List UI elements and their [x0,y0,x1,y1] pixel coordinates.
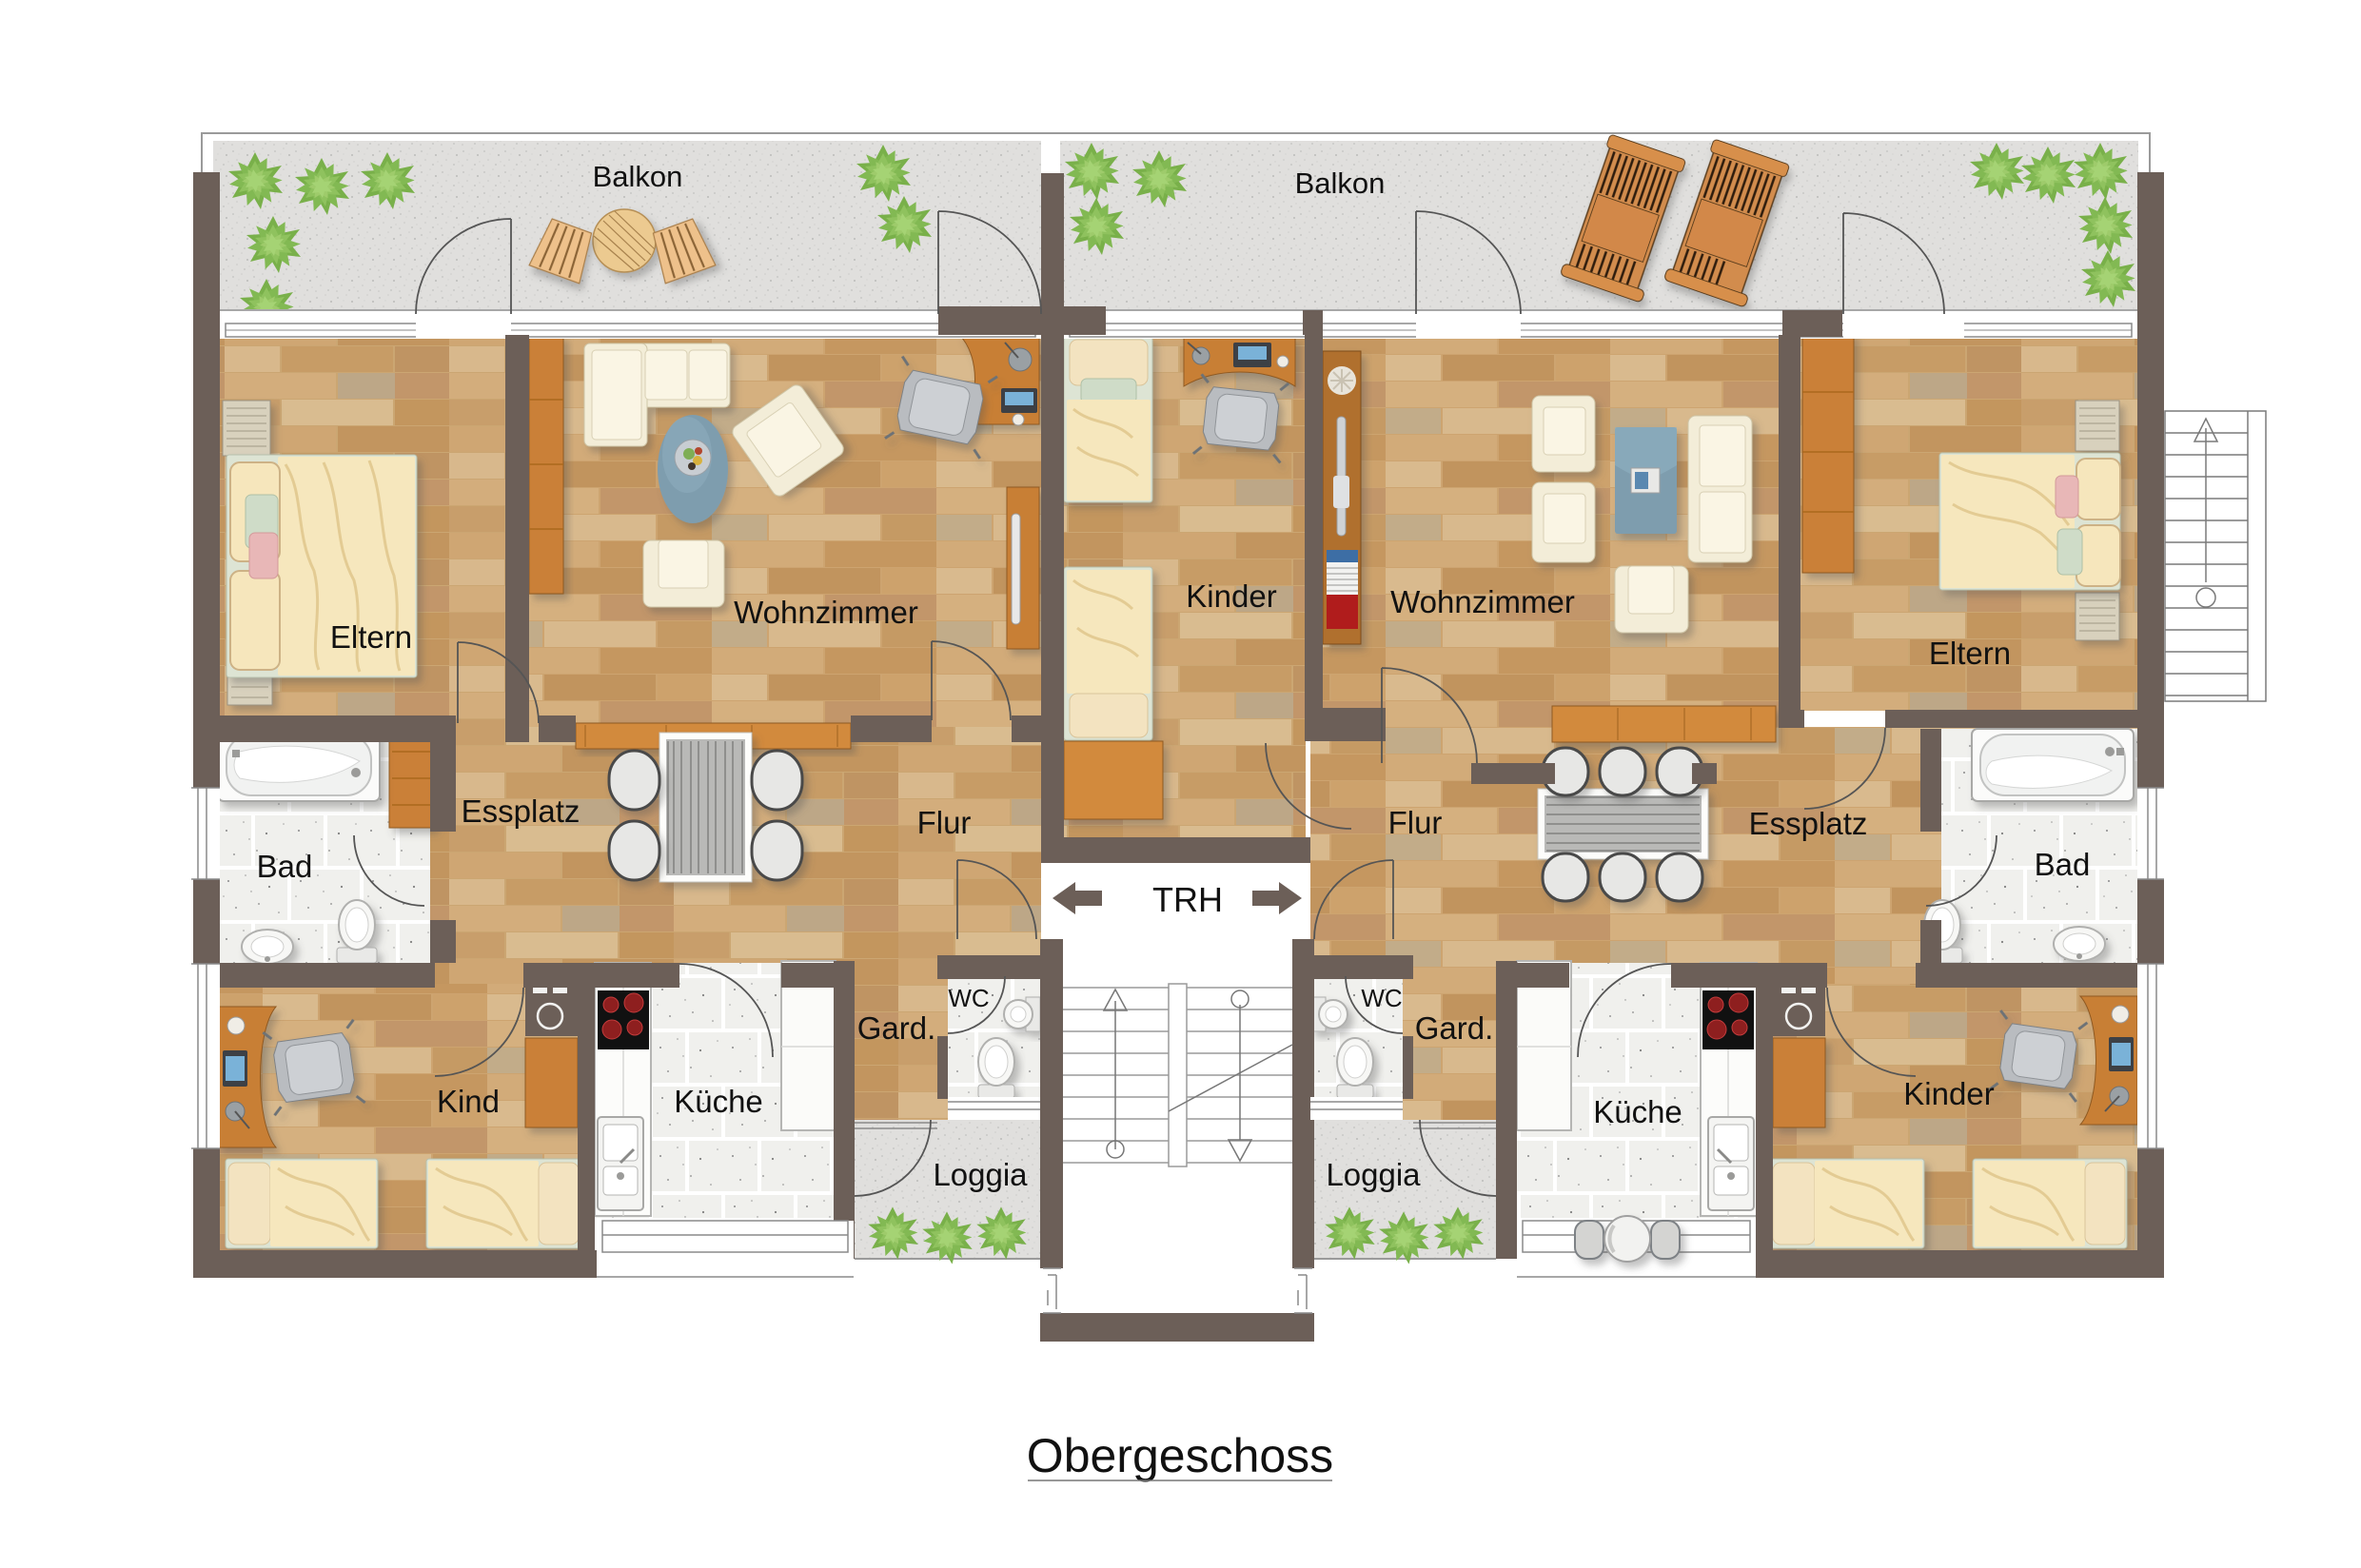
svg-text:Flur: Flur [917,805,972,840]
svg-text:Balkon: Balkon [1295,167,1386,200]
svg-text:Balkon: Balkon [593,160,683,193]
svg-text:Kinder: Kinder [1903,1076,1994,1111]
svg-text:Küche: Küche [1593,1094,1682,1129]
svg-text:Gard.: Gard. [857,1010,936,1046]
svg-text:Wohnzimmer: Wohnzimmer [1390,584,1575,619]
svg-text:Eltern: Eltern [330,619,412,655]
svg-text:Obergeschoss: Obergeschoss [1027,1429,1333,1482]
svg-text:WC: WC [1361,984,1402,1012]
svg-text:Eltern: Eltern [1929,636,2011,671]
svg-text:Essplatz: Essplatz [1749,806,1868,841]
svg-text:Wohnzimmer: Wohnzimmer [734,595,918,630]
svg-text:Bad: Bad [2035,847,2091,882]
svg-text:Loggia: Loggia [933,1157,1028,1192]
svg-text:Flur: Flur [1388,805,1443,840]
svg-text:Kind: Kind [437,1084,500,1119]
svg-text:Küche: Küche [674,1084,763,1119]
svg-text:Loggia: Loggia [1326,1157,1421,1192]
svg-text:Bad: Bad [257,849,313,884]
svg-text:WC: WC [948,984,989,1012]
svg-text:Essplatz: Essplatz [462,794,580,829]
svg-text:Kinder: Kinder [1186,578,1276,614]
svg-text:TRH: TRH [1152,880,1223,919]
svg-text:Gard.: Gard. [1415,1010,1494,1046]
